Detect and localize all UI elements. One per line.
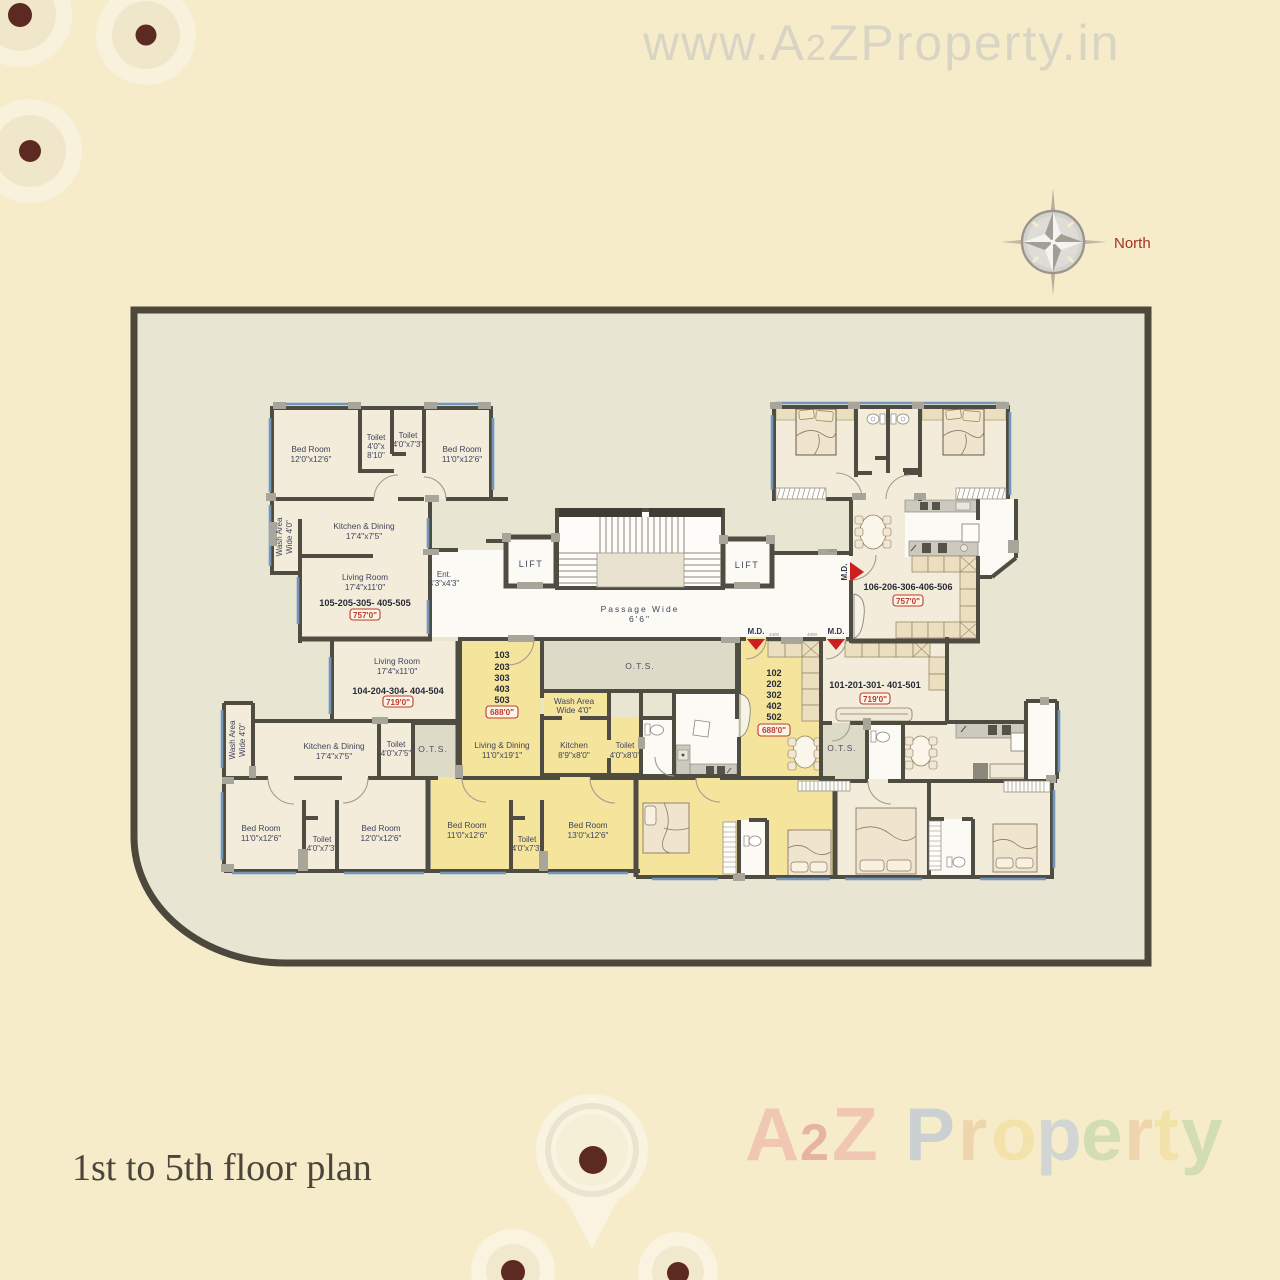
svg-text:302: 302 <box>766 690 781 700</box>
svg-text:Toilet: Toilet <box>367 433 386 442</box>
svg-text:719'0": 719'0" <box>386 698 410 707</box>
svg-text:Bed Room: Bed Room <box>568 820 607 830</box>
svg-text:Toilet: Toilet <box>616 741 635 750</box>
svg-text:688'0": 688'0" <box>762 726 786 735</box>
svg-text:y: y <box>1181 1092 1223 1176</box>
svg-text:403: 403 <box>494 684 509 694</box>
svg-text:Ent.: Ent. <box>437 570 451 579</box>
svg-text:17'4"x11'0": 17'4"x11'0" <box>345 582 385 592</box>
svg-text:4'0"x8'0": 4'0"x8'0" <box>610 751 641 760</box>
svg-text:503: 503 <box>494 695 509 705</box>
svg-text:12'0"x12'6": 12'0"x12'6" <box>291 454 332 464</box>
svg-text:4'0"x7'3": 4'0"x7'3" <box>307 844 338 853</box>
svg-text:North: North <box>1114 235 1151 252</box>
svg-text:Bed Room: Bed Room <box>442 444 481 454</box>
svg-text:Wash Area: Wash Area <box>275 517 284 556</box>
svg-text:4400: 4400 <box>827 548 838 553</box>
svg-text:Wash Area: Wash Area <box>228 720 237 759</box>
svg-text:Wide 4'0": Wide 4'0" <box>557 705 592 715</box>
svg-text:4'0"x7'5": 4'0"x7'5" <box>381 749 412 758</box>
svg-text:102: 102 <box>766 668 781 678</box>
svg-text:Kitchen & Dining: Kitchen & Dining <box>303 741 365 751</box>
svg-text:M.D.: M.D. <box>748 627 765 636</box>
svg-text:17'4"x7'5": 17'4"x7'5" <box>346 531 382 541</box>
svg-text:www.A2ZProperty.in: www.A2ZProperty.in <box>642 15 1120 71</box>
svg-text:e: e <box>1081 1092 1123 1176</box>
svg-text:A: A <box>745 1092 799 1176</box>
svg-text:13'0"x12'6": 13'0"x12'6" <box>568 830 609 840</box>
svg-text:4'0"x7'3": 4'0"x7'3" <box>512 844 543 853</box>
svg-text:101-201-301- 401-501: 101-201-301- 401-501 <box>829 680 920 690</box>
svg-text:Living Room: Living Room <box>374 656 420 666</box>
svg-text:12'0"x12'6": 12'0"x12'6" <box>361 833 402 843</box>
svg-text:4'3"x4'3": 4'3"x4'3" <box>429 579 460 588</box>
svg-text:Wide 4'0": Wide 4'0" <box>238 723 247 757</box>
svg-text:402: 402 <box>766 701 781 711</box>
svg-text:11'0"x19'1": 11'0"x19'1" <box>482 750 522 760</box>
svg-text:2: 2 <box>800 1114 829 1172</box>
svg-text:757'0": 757'0" <box>896 597 920 606</box>
svg-text:105-205-305- 405-505: 105-205-305- 405-505 <box>319 598 410 608</box>
svg-text:11'0"x12'6": 11'0"x12'6" <box>241 833 281 843</box>
svg-text:Wide 4'0": Wide 4'0" <box>285 520 294 554</box>
svg-text:O.T.S.: O.T.S. <box>625 661 655 671</box>
svg-text:719'0": 719'0" <box>863 695 887 704</box>
svg-text:LIFT: LIFT <box>519 559 544 569</box>
svg-text:r: r <box>1124 1092 1153 1176</box>
svg-text:103: 103 <box>494 650 509 660</box>
svg-text:Toilet: Toilet <box>518 835 537 844</box>
svg-text:Toilet: Toilet <box>387 740 406 749</box>
svg-text:11'0"x12'6": 11'0"x12'6" <box>442 454 482 464</box>
svg-text:303: 303 <box>494 673 509 683</box>
svg-text:Toilet: Toilet <box>399 431 418 440</box>
svg-text:p: p <box>1036 1092 1082 1176</box>
svg-text:Living & Dining: Living & Dining <box>474 740 530 750</box>
svg-text:t: t <box>1154 1092 1179 1176</box>
svg-text:202: 202 <box>766 679 781 689</box>
svg-text:Toilet: Toilet <box>313 835 332 844</box>
svg-text:P: P <box>905 1092 955 1176</box>
svg-text:Living Room: Living Room <box>342 572 388 582</box>
svg-text:502: 502 <box>766 712 781 722</box>
svg-text:6'6": 6'6" <box>629 614 651 624</box>
svg-text:Kitchen: Kitchen <box>560 740 588 750</box>
svg-text:757'0": 757'0" <box>353 611 377 620</box>
svg-text:4500: 4500 <box>807 632 818 637</box>
svg-text:104-204-304- 404-504: 104-204-304- 404-504 <box>352 686 444 696</box>
svg-text:r: r <box>958 1092 987 1176</box>
svg-text:106-206-306-406-506: 106-206-306-406-506 <box>864 582 953 592</box>
svg-text:Bed Room: Bed Room <box>241 823 280 833</box>
svg-text:17'4"x7'5": 17'4"x7'5" <box>316 751 352 761</box>
svg-text:O.T.S.: O.T.S. <box>418 744 448 754</box>
svg-text:11'0"x12'6": 11'0"x12'6" <box>447 830 487 840</box>
svg-text:4'0"x7'3": 4'0"x7'3" <box>393 440 424 449</box>
svg-text:17'4"x11'0": 17'4"x11'0" <box>377 666 417 676</box>
svg-text:Passage Wide: Passage Wide <box>601 604 680 614</box>
svg-text:Kitchen & Dining: Kitchen & Dining <box>333 521 395 531</box>
svg-text:LIFT: LIFT <box>735 560 760 570</box>
svg-text:1st to 5th floor plan: 1st to 5th floor plan <box>72 1147 372 1189</box>
svg-text:Bed Room: Bed Room <box>361 823 400 833</box>
svg-text:Bed Room: Bed Room <box>447 820 486 830</box>
svg-text:M.D.: M.D. <box>840 564 849 581</box>
svg-text:203: 203 <box>494 662 509 672</box>
svg-text:8'10": 8'10" <box>367 451 385 460</box>
svg-text:M.D.: M.D. <box>828 627 845 636</box>
svg-text:O.T.S.: O.T.S. <box>827 743 857 753</box>
svg-text:4400: 4400 <box>769 632 780 637</box>
svg-text:4'0"x: 4'0"x <box>367 442 384 451</box>
svg-text:688'0": 688'0" <box>490 708 514 717</box>
svg-text:Z: Z <box>832 1092 878 1176</box>
svg-text:8'9"x8'0": 8'9"x8'0" <box>558 750 590 760</box>
svg-text:Bed Room: Bed Room <box>291 444 330 454</box>
svg-text:o: o <box>991 1092 1037 1176</box>
